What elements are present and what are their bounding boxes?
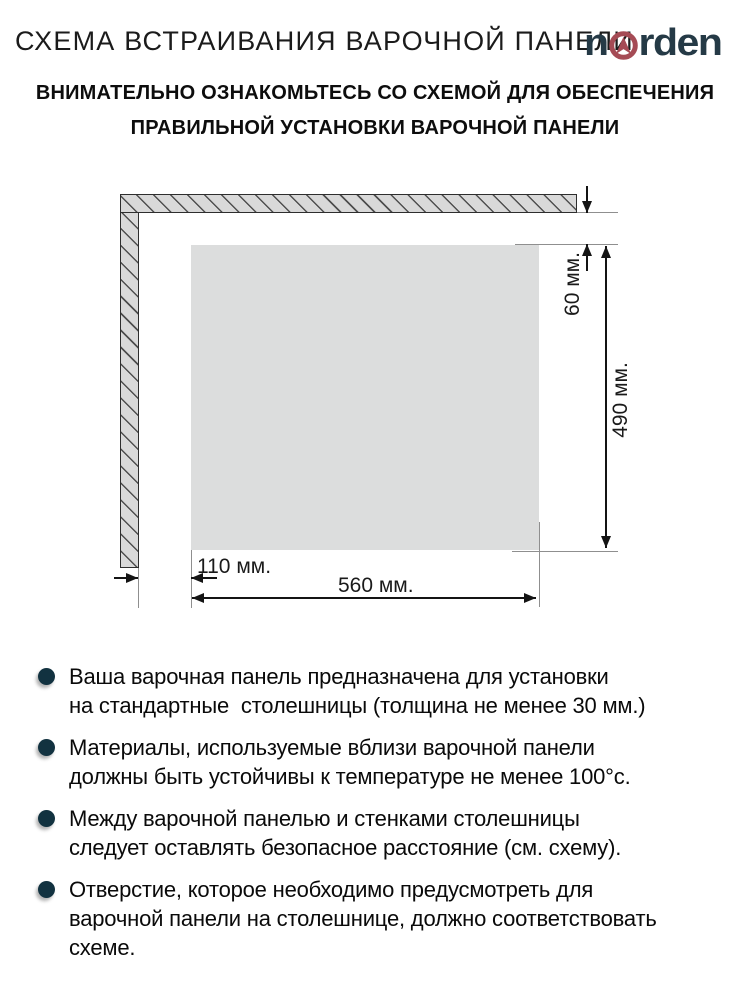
arrowhead-down-490 xyxy=(601,536,611,548)
logo-compass-icon xyxy=(609,31,638,60)
wall-left-hatched xyxy=(120,212,139,568)
dim-label-560mm: 560 мм. xyxy=(338,574,414,598)
dim-label-490mm: 490 мм. xyxy=(609,362,633,438)
bullet-icon xyxy=(38,810,55,827)
bullet-icon xyxy=(38,881,55,898)
arrowhead-down-60 xyxy=(582,201,592,213)
note-line: Между варочной панелью и стенками столеш… xyxy=(69,804,621,833)
notes-list: Ваша варочная панель предназначена для у… xyxy=(38,662,732,975)
bullet-icon xyxy=(38,668,55,685)
note-line: на стандартные столешницы (толщина не ме… xyxy=(69,691,645,720)
dim-label-60mm: 60 мм. xyxy=(561,252,585,316)
dim-line-490 xyxy=(605,246,607,548)
cutout-rectangle xyxy=(191,245,539,550)
arrowhead-up-490 xyxy=(601,246,611,258)
note-line: варочной панели на столешнице, должно со… xyxy=(69,904,657,933)
extension-line-cutout-right xyxy=(539,522,540,607)
note-line: должны быть устойчивы к температуре не м… xyxy=(69,762,630,791)
logo-letters-right: rden xyxy=(639,24,722,62)
extension-line-cutout-bottom-right xyxy=(512,551,618,552)
brand-logo: n rden xyxy=(584,22,721,63)
arrowhead-right-560 xyxy=(524,593,536,603)
page-title: СХЕМА ВСТРАИВАНИЯ ВАРОЧНОЙ ПАНЕЛИ xyxy=(15,26,634,57)
note-line: Материалы, используемые вблизи варочной … xyxy=(69,733,630,762)
extension-line-wall-right xyxy=(138,568,139,608)
note-line: Ваша варочная панель предназначена для у… xyxy=(69,662,645,691)
list-item: Между варочной панелью и стенками столеш… xyxy=(38,804,732,862)
note-line: Отверстие, которое необходимо предусмотр… xyxy=(69,875,657,904)
arrowhead-right-110 xyxy=(126,573,138,583)
arrowhead-left-560 xyxy=(192,593,204,603)
note-line: следует оставлять безопасное расстояние … xyxy=(69,833,621,862)
note-line: схеме. xyxy=(69,933,657,962)
subtitle-line-2: ПРАВИЛЬНОЙ УСТАНОВКИ ВАРОЧНОЙ ПАНЕЛИ xyxy=(0,111,750,146)
dim-label-110mm: 110 мм. xyxy=(197,555,271,579)
subtitle: ВНИМАТЕЛЬНО ОЗНАКОМЬТЕСЬ СО СХЕМОЙ ДЛЯ О… xyxy=(0,76,750,146)
list-item: Материалы, используемые вблизи варочной … xyxy=(38,733,732,791)
list-item: Ваша варочная панель предназначена для у… xyxy=(38,662,732,720)
subtitle-line-1: ВНИМАТЕЛЬНО ОЗНАКОМЬТЕСЬ СО СХЕМОЙ ДЛЯ О… xyxy=(0,76,750,111)
logo-letters-left: n xyxy=(584,24,608,62)
wall-top-hatched xyxy=(120,194,577,213)
extension-line-cutout-top xyxy=(515,244,618,245)
list-item: Отверстие, которое необходимо предусмотр… xyxy=(38,875,732,962)
bullet-icon xyxy=(38,739,55,756)
